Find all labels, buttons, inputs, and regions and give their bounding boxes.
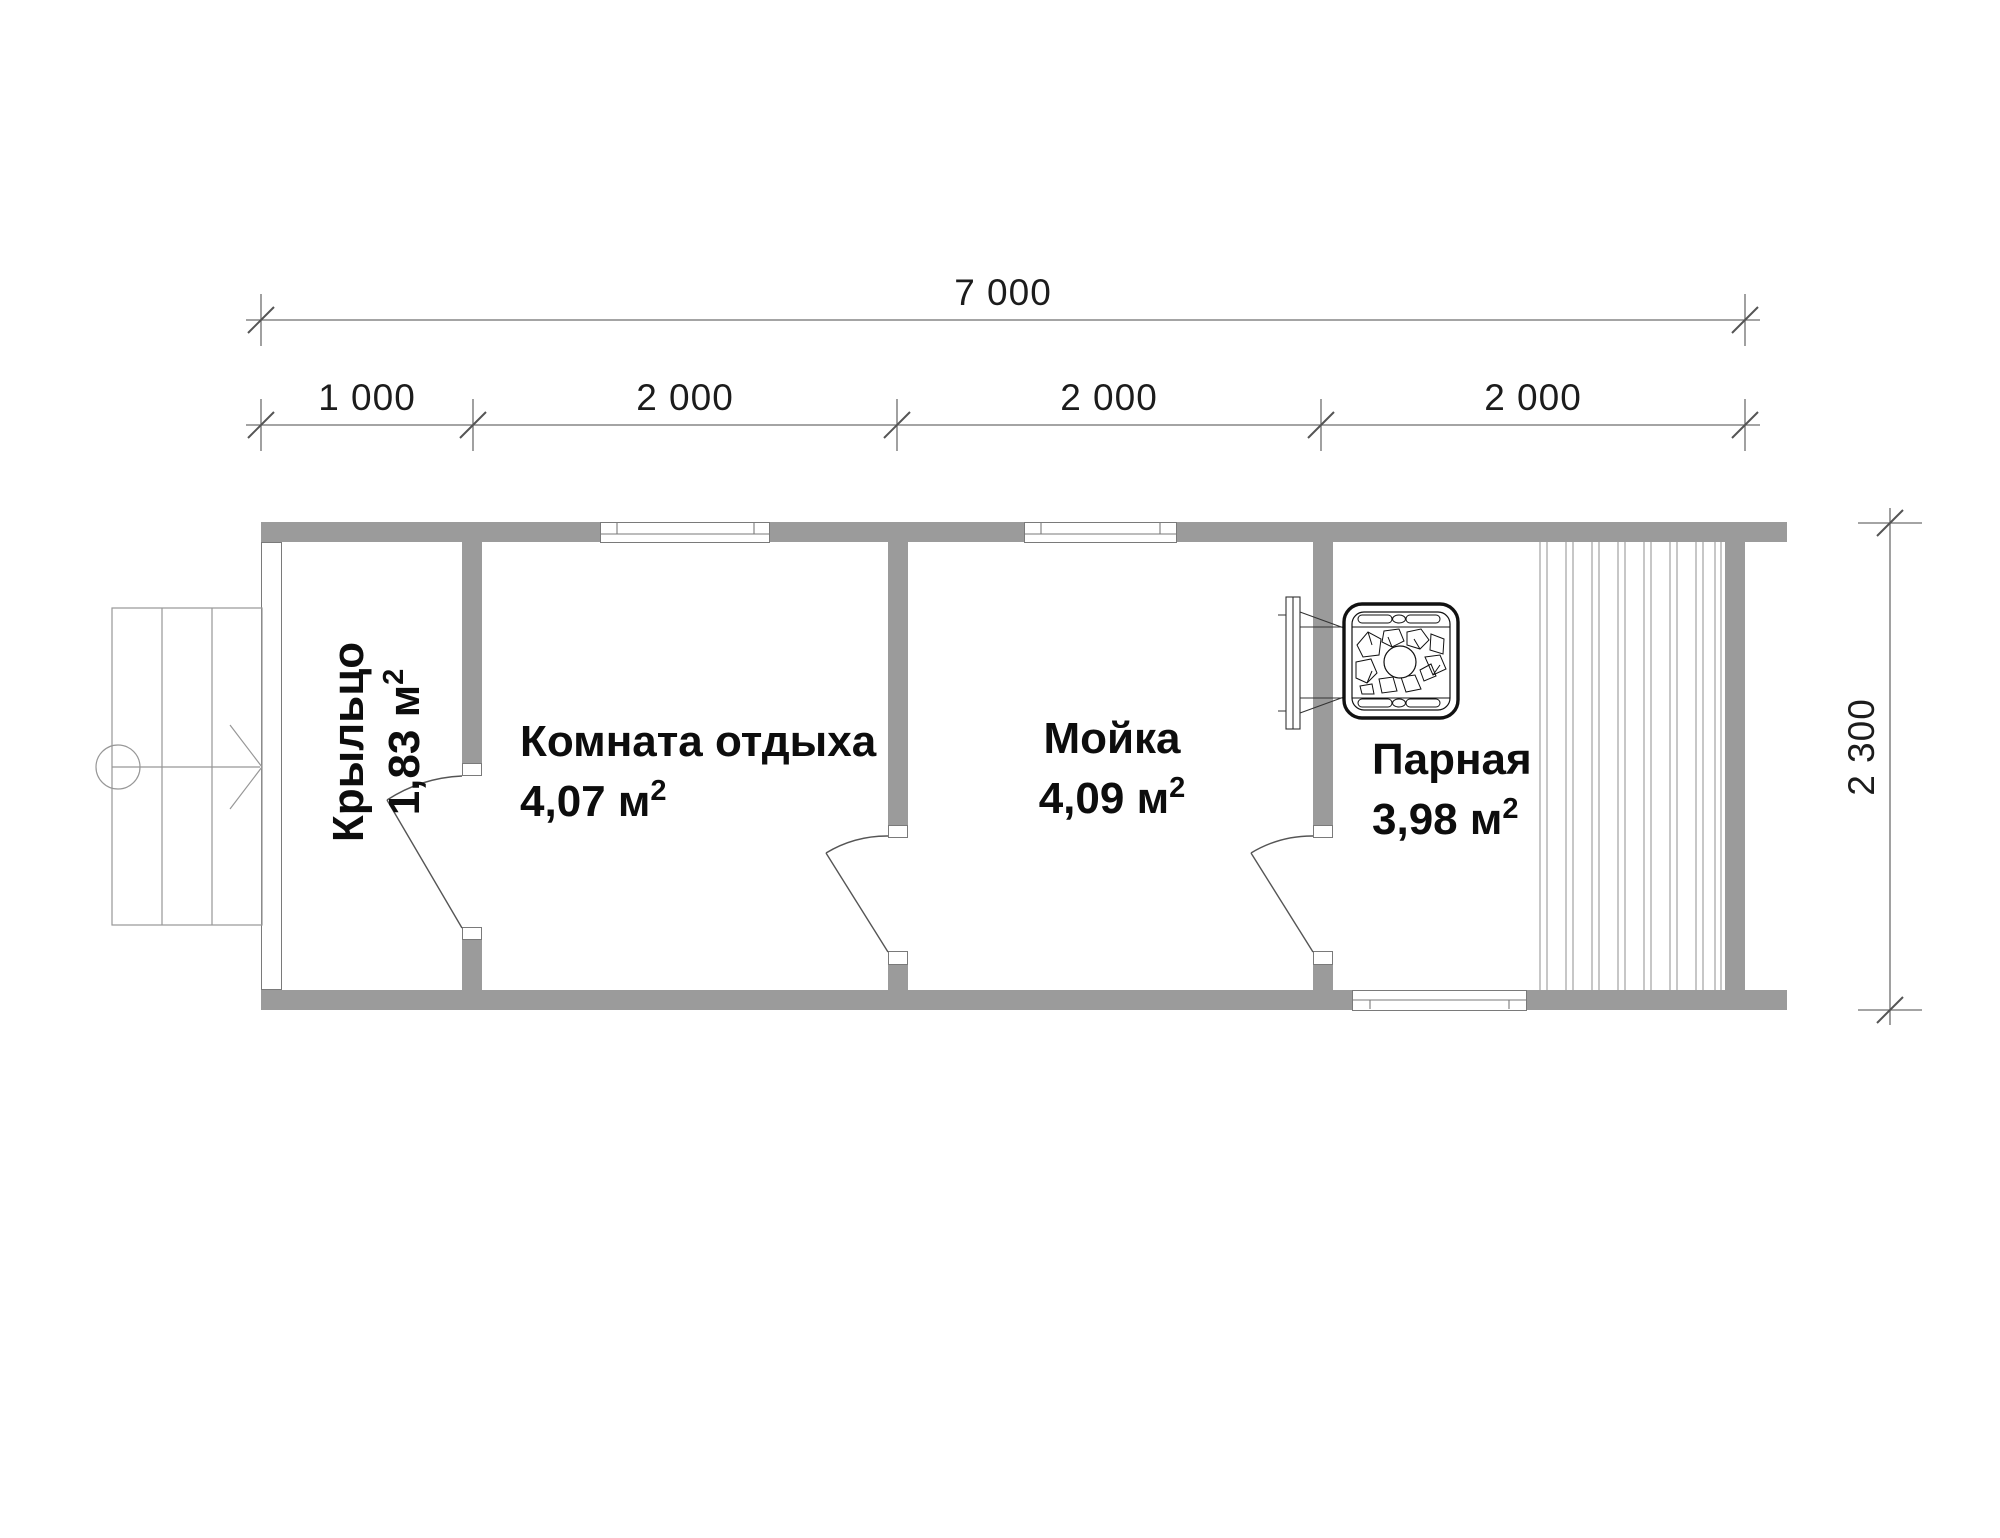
- room-area: 4,07 м2: [520, 772, 876, 832]
- room-label-rest-room: Комната отдыха 4,07 м2: [520, 712, 876, 832]
- floor-plan-canvas: 7 000 1 000 2 000 2 000 2 000 2 300 Крыл…: [0, 0, 2000, 1538]
- door-restroom-washroom: [826, 836, 888, 952]
- room-name: Крыльцо: [321, 642, 377, 842]
- room-label-porch: Крыльцо 1,83 м2: [321, 642, 433, 842]
- dimension-label-segment-4: 2 000: [1484, 377, 1582, 419]
- entry-direction-arrow-icon: [96, 725, 262, 809]
- dimension-label-total-width: 7 000: [954, 272, 1052, 314]
- room-area: 4,09 м2: [1039, 769, 1186, 829]
- door-washroom-steamroom: [1251, 836, 1313, 952]
- bench-slats-icon: [1540, 542, 1721, 990]
- room-label-wash-room: Мойка 4,09 м2: [1039, 709, 1186, 829]
- room-area: 1,83 м2: [377, 642, 433, 842]
- sauna-stove-icon: [1344, 604, 1458, 718]
- stove-mounting-plate: [1278, 597, 1344, 729]
- room-name: Мойка: [1039, 709, 1186, 769]
- room-label-steam-room: Парная 3,98 м2: [1372, 730, 1532, 850]
- room-name: Комната отдыха: [520, 712, 876, 772]
- dimension-label-height: 2 300: [1841, 698, 1883, 796]
- porch-steps-icon: [96, 608, 262, 925]
- dimension-label-segment-1: 1 000: [318, 377, 416, 419]
- dimension-label-segment-2: 2 000: [636, 377, 734, 419]
- dimension-label-segment-3: 2 000: [1060, 377, 1158, 419]
- room-area: 3,98 м2: [1372, 790, 1532, 850]
- plan-linework: [0, 0, 2000, 1538]
- stove-stones: [1356, 629, 1446, 694]
- room-name: Парная: [1372, 730, 1532, 790]
